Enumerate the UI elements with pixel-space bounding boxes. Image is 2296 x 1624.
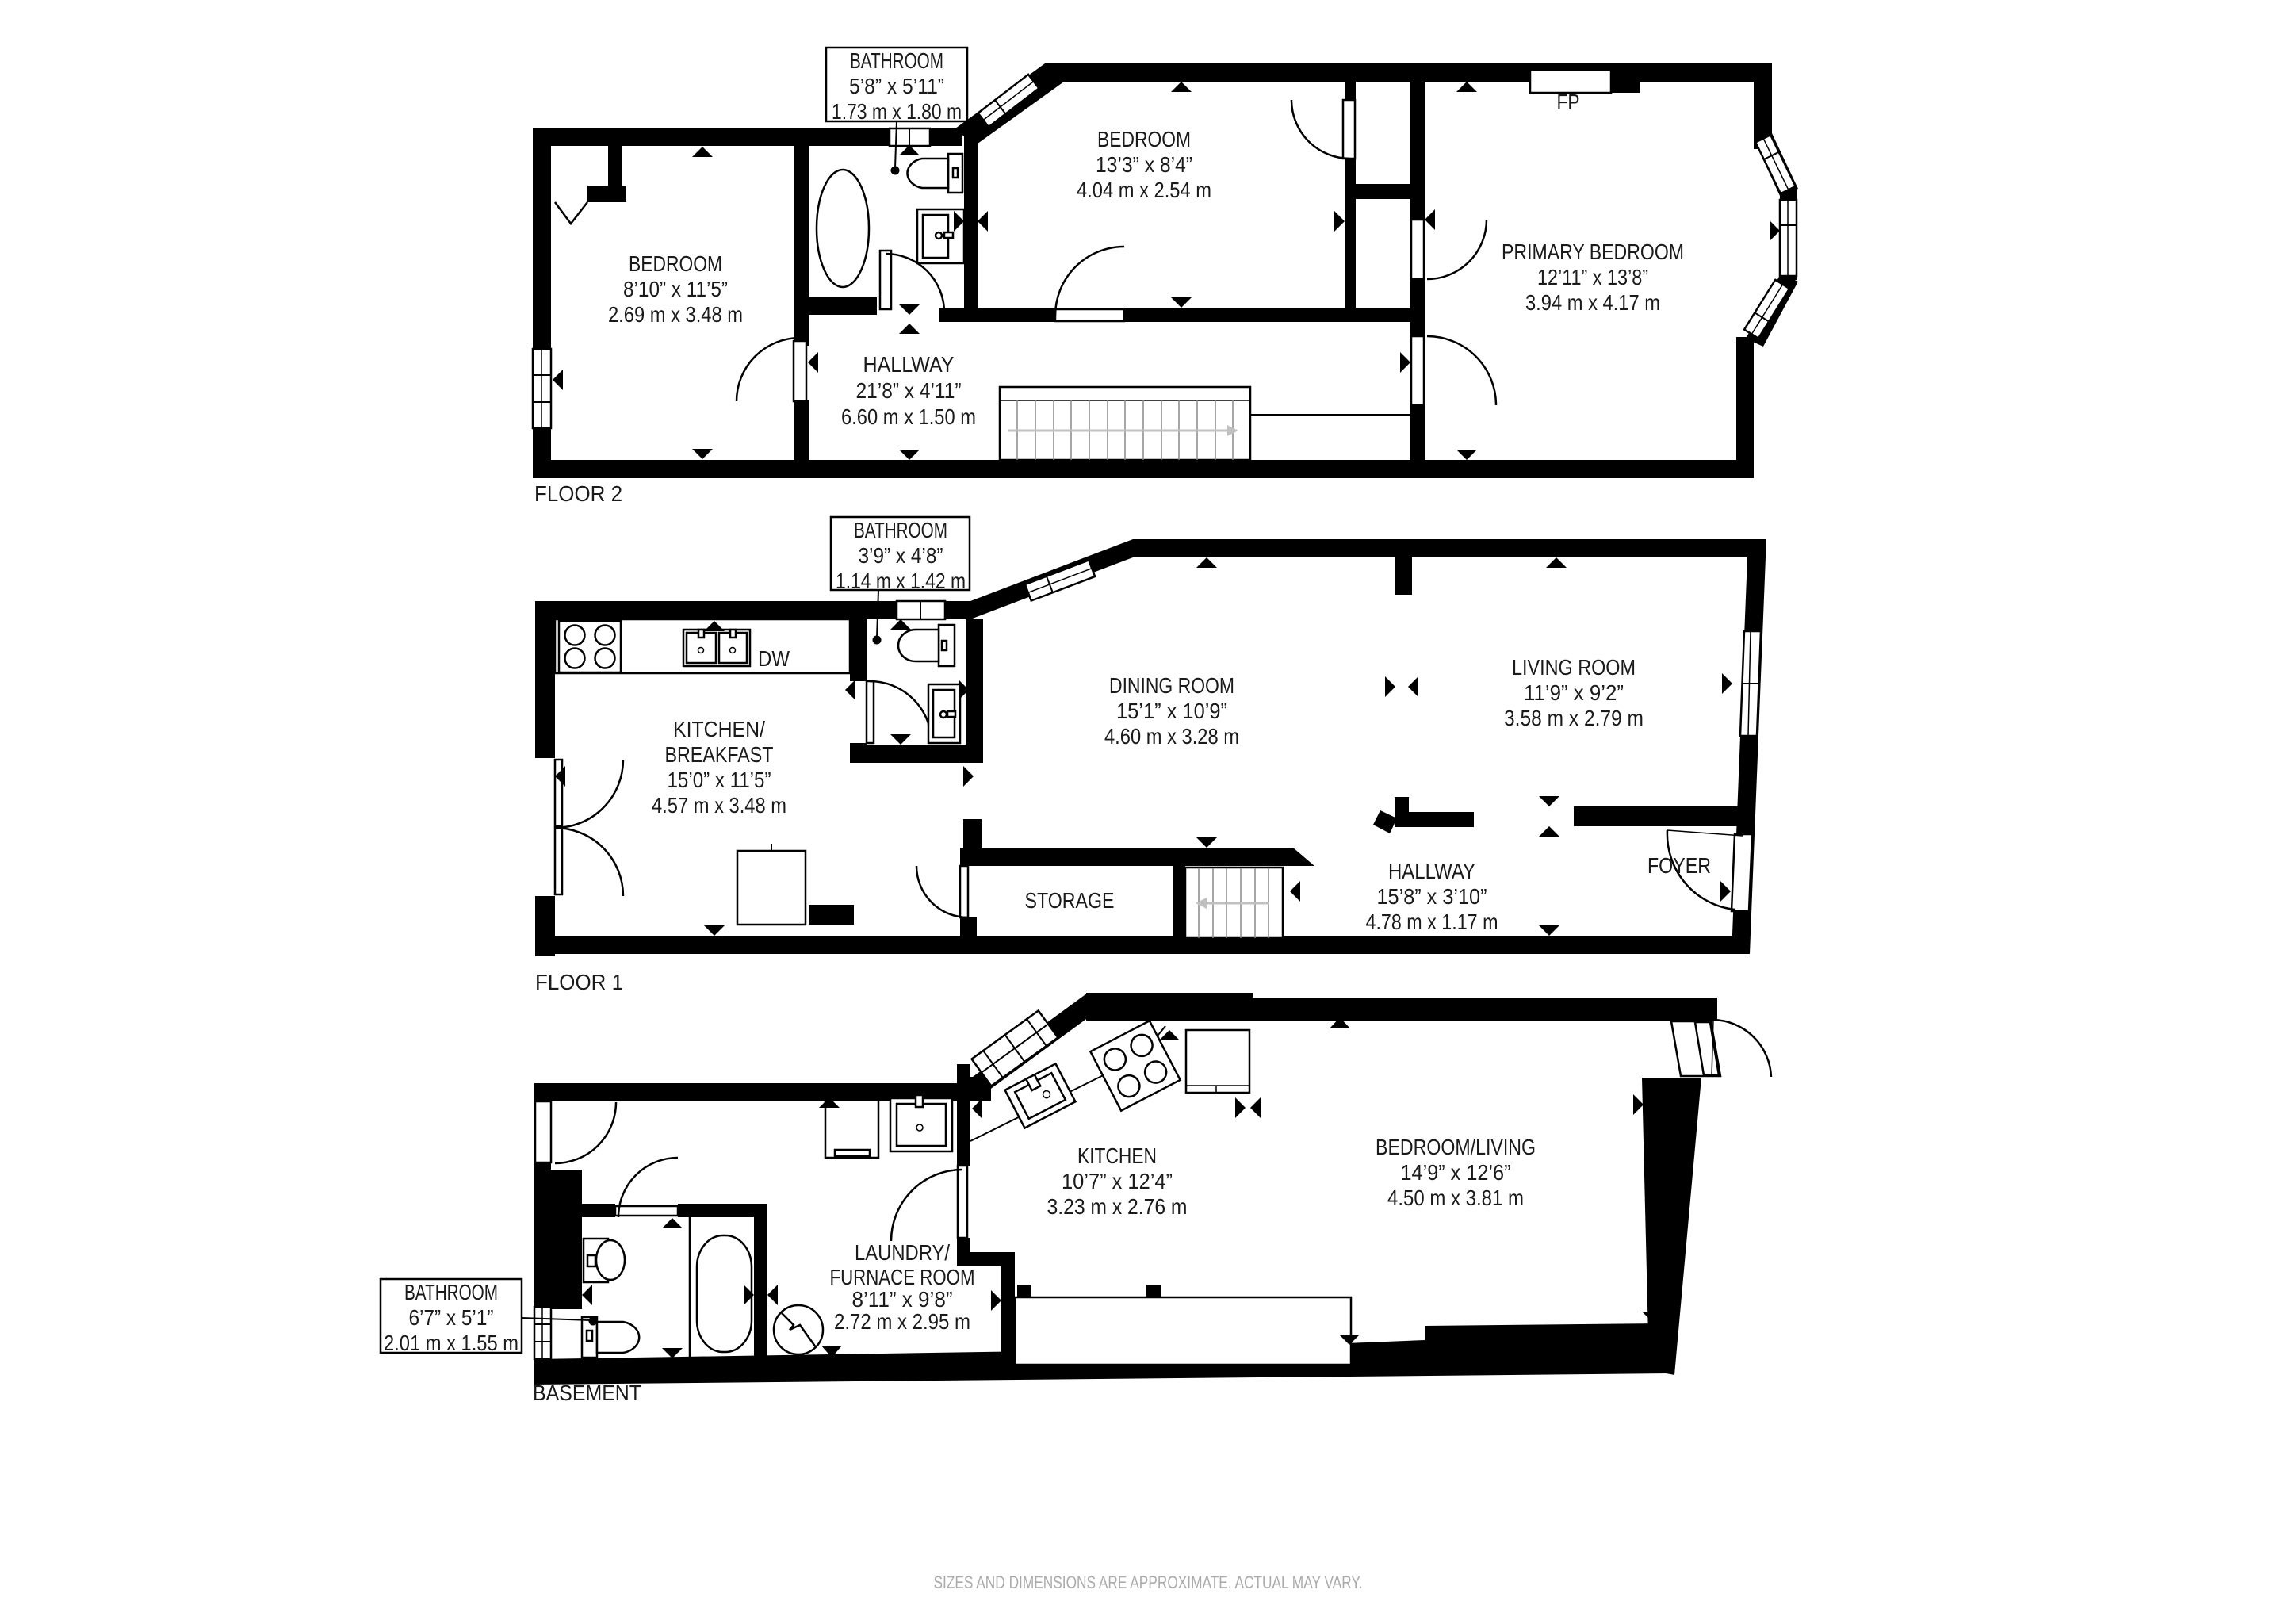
svg-text:4.50 m x 3.81 m: 4.50 m x 3.81 m [1387, 1185, 1524, 1210]
svg-text:15’1” x 10’9”: 15’1” x 10’9” [1116, 699, 1227, 723]
svg-text:15’8” x 3’10”: 15’8” x 3’10” [1377, 884, 1487, 909]
svg-text:8’11” x 9’8”: 8’11” x 9’8” [852, 1287, 953, 1312]
svg-text:FURNACE ROOM: FURNACE ROOM [830, 1265, 975, 1289]
svg-text:BEDROOM: BEDROOM [629, 251, 722, 276]
svg-text:FOYER: FOYER [1647, 853, 1711, 878]
svg-text:5’8” x 5’11”: 5’8” x 5’11” [849, 74, 944, 98]
svg-text:8’10” x 11’5”: 8’10” x 11’5” [623, 277, 728, 301]
svg-text:HALLWAY: HALLWAY [1388, 859, 1475, 883]
svg-text:FP: FP [1557, 90, 1580, 114]
svg-text:FLOOR 2: FLOOR 2 [534, 481, 622, 506]
svg-text:21’8” x 4’11”: 21’8” x 4’11” [856, 378, 962, 403]
svg-text:13’3” x 8’4”: 13’3” x 8’4” [1096, 152, 1192, 177]
svg-text:BATHROOM: BATHROOM [850, 48, 943, 73]
svg-text:15’0” x 11’5”: 15’0” x 11’5” [668, 768, 771, 792]
svg-text:1.14 m x 1.42 m: 1.14 m x 1.42 m [836, 569, 966, 593]
svg-text:DW: DW [758, 646, 790, 671]
svg-text:2.72 m x 2.95 m: 2.72 m x 2.95 m [834, 1309, 970, 1334]
svg-text:FLOOR 1: FLOOR 1 [535, 970, 623, 994]
svg-text:3.23 m x 2.76 m: 3.23 m x 2.76 m [1047, 1194, 1188, 1219]
svg-text:LIVING ROOM: LIVING ROOM [1512, 655, 1636, 680]
svg-text:KITCHEN: KITCHEN [1077, 1143, 1157, 1168]
svg-text:11’9” x 9’2”: 11’9” x 9’2” [1524, 680, 1624, 705]
svg-text:BATHROOM: BATHROOM [854, 518, 947, 542]
svg-text:HALLWAY: HALLWAY [863, 352, 955, 377]
svg-text:STORAGE: STORAGE [1025, 888, 1115, 913]
svg-text:LAUNDRY/: LAUNDRY/ [855, 1240, 950, 1265]
svg-text:BASEMENT: BASEMENT [533, 1381, 641, 1405]
svg-text:14’9” x 12’6”: 14’9” x 12’6” [1401, 1160, 1511, 1185]
svg-text:3.58 m x 2.79 m: 3.58 m x 2.79 m [1504, 706, 1644, 730]
svg-text:4.60 m x 3.28 m: 4.60 m x 3.28 m [1104, 724, 1239, 749]
svg-text:6’7” x 5’1”: 6’7” x 5’1” [409, 1305, 494, 1330]
svg-text:PRIMARY BEDROOM: PRIMARY BEDROOM [1502, 239, 1684, 264]
svg-text:12’11” x 13’8”: 12’11” x 13’8” [1537, 265, 1648, 289]
svg-text:6.60 m x 1.50 m: 6.60 m x 1.50 m [841, 404, 976, 429]
svg-text:BATHROOM: BATHROOM [404, 1280, 498, 1304]
svg-text:2.69 m x 3.48 m: 2.69 m x 3.48 m [608, 302, 743, 327]
svg-text:4.04 m x 2.54 m: 4.04 m x 2.54 m [1077, 178, 1211, 202]
svg-text:2.01 m x 1.55 m: 2.01 m x 1.55 m [384, 1331, 519, 1355]
svg-text:BEDROOM: BEDROOM [1097, 127, 1191, 151]
svg-text:SIZES AND DIMENSIONS ARE APPRO: SIZES AND DIMENSIONS ARE APPROXIMATE, AC… [934, 1572, 1363, 1592]
svg-text:BEDROOM/LIVING: BEDROOM/LIVING [1376, 1135, 1536, 1159]
svg-text:4.57 m x 3.48 m: 4.57 m x 3.48 m [652, 793, 786, 818]
svg-text:3.94 m x 4.17 m: 3.94 m x 4.17 m [1525, 290, 1660, 315]
svg-text:1.73 m x 1.80 m: 1.73 m x 1.80 m [832, 99, 962, 124]
svg-text:KITCHEN/: KITCHEN/ [673, 717, 765, 741]
svg-text:BREAKFAST: BREAKFAST [665, 742, 774, 767]
svg-text:10’7” x 12’4”: 10’7” x 12’4” [1062, 1169, 1173, 1193]
svg-text:DINING ROOM: DINING ROOM [1109, 673, 1234, 698]
svg-text:3’9” x 4’8”: 3’9” x 4’8” [859, 543, 943, 568]
svg-text:4.78 m x 1.17 m: 4.78 m x 1.17 m [1366, 910, 1498, 934]
